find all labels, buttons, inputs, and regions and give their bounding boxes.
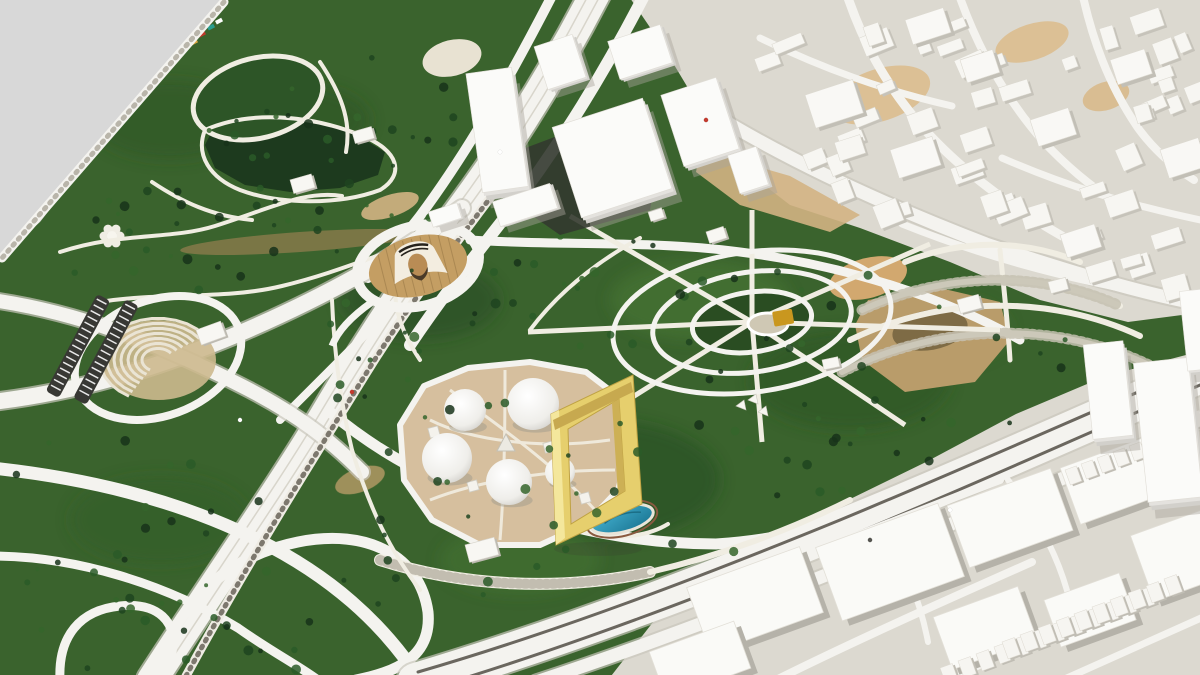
vehicle	[868, 538, 872, 542]
tree	[937, 305, 942, 310]
tree	[122, 557, 128, 563]
dome-building	[486, 459, 532, 505]
tree	[167, 517, 175, 525]
tree	[353, 113, 361, 121]
tree	[802, 402, 807, 407]
tree	[631, 239, 635, 243]
tree	[46, 440, 51, 445]
tree	[1063, 337, 1068, 342]
tree	[264, 109, 270, 115]
tree	[35, 567, 39, 571]
tree	[481, 592, 486, 597]
tree	[483, 577, 493, 587]
tree	[313, 226, 321, 234]
tree	[273, 199, 278, 204]
tree	[291, 665, 301, 675]
tree	[774, 268, 781, 275]
tree	[472, 311, 477, 316]
tree	[210, 614, 217, 621]
tree	[169, 254, 173, 258]
tree	[126, 604, 135, 613]
tree	[230, 131, 239, 140]
tree	[329, 158, 334, 163]
tree	[675, 289, 685, 299]
tree	[204, 583, 208, 587]
tree	[729, 547, 738, 556]
tree	[55, 560, 61, 566]
tree	[592, 508, 601, 517]
tree	[249, 154, 256, 161]
tree	[816, 416, 821, 421]
tree	[405, 377, 411, 383]
tree	[208, 508, 214, 514]
tree	[410, 269, 414, 273]
tree	[113, 550, 122, 559]
tree	[304, 119, 313, 128]
tree	[255, 497, 263, 505]
tree	[113, 597, 119, 603]
tree	[433, 477, 442, 486]
tree	[864, 271, 873, 280]
tree	[129, 266, 139, 276]
tree	[385, 448, 393, 456]
tree	[143, 246, 150, 253]
tree	[784, 457, 791, 464]
tree	[485, 402, 492, 409]
tree	[269, 247, 278, 256]
tree	[120, 436, 130, 446]
tree	[745, 446, 754, 455]
tree	[286, 113, 291, 118]
tree	[236, 272, 245, 281]
tree	[116, 212, 120, 216]
tree	[871, 396, 879, 404]
tree	[838, 487, 845, 494]
tree	[365, 203, 369, 207]
tree	[215, 264, 221, 270]
tree	[686, 339, 693, 346]
tree	[403, 331, 407, 335]
tree	[617, 421, 623, 427]
tree	[183, 254, 193, 264]
tree	[177, 599, 183, 605]
tree	[125, 594, 134, 603]
tree	[520, 484, 530, 494]
tree	[562, 282, 567, 287]
tree	[72, 270, 78, 276]
map-viewport[interactable]	[0, 0, 1200, 675]
tree	[574, 491, 579, 496]
tree	[848, 442, 853, 447]
tree	[273, 114, 278, 119]
tree	[1057, 363, 1066, 372]
tree	[491, 299, 501, 309]
tree	[490, 268, 498, 276]
tree	[668, 539, 677, 548]
map-canvas	[0, 0, 1200, 675]
tree	[362, 394, 367, 399]
tree	[257, 185, 264, 192]
tree	[336, 380, 345, 389]
tree	[167, 462, 174, 469]
tree	[335, 249, 339, 253]
tree	[290, 86, 295, 91]
tree	[786, 344, 794, 352]
tree	[417, 348, 422, 353]
tree	[181, 628, 187, 634]
tree	[731, 275, 738, 282]
vehicle	[350, 390, 354, 394]
tree	[388, 125, 397, 134]
tree	[141, 524, 150, 533]
tree	[253, 202, 261, 210]
tree	[106, 198, 112, 204]
tree	[694, 420, 704, 430]
tree	[566, 453, 571, 458]
tree	[439, 83, 448, 92]
tree	[345, 179, 354, 188]
tree	[194, 286, 203, 295]
tree	[391, 164, 395, 168]
tree	[341, 578, 346, 583]
tree	[368, 357, 373, 362]
tree	[177, 200, 186, 209]
plaza-pavilion	[579, 492, 591, 504]
tree	[530, 260, 538, 268]
tree	[764, 336, 769, 341]
tree	[590, 267, 600, 277]
vehicle	[948, 508, 952, 512]
tree	[650, 243, 655, 248]
tree	[92, 216, 99, 223]
tree	[207, 128, 212, 133]
tree	[857, 362, 866, 371]
tree	[186, 459, 196, 469]
tree	[120, 201, 130, 211]
tree	[409, 332, 419, 342]
tree	[827, 301, 837, 311]
tree	[306, 618, 314, 626]
tree	[546, 445, 554, 453]
tree	[90, 568, 98, 576]
tree	[445, 405, 455, 415]
tree	[323, 135, 332, 144]
tree	[369, 55, 375, 61]
tree	[203, 530, 209, 536]
tree	[262, 567, 271, 576]
tree	[375, 601, 381, 607]
tree	[389, 213, 393, 217]
tree	[392, 574, 400, 582]
tree	[13, 471, 20, 478]
tree	[470, 320, 476, 326]
tree	[993, 334, 1001, 342]
tree	[85, 665, 91, 671]
tree	[424, 137, 431, 144]
tree	[376, 516, 385, 525]
tree	[448, 137, 457, 146]
tree	[799, 287, 805, 293]
tree	[411, 135, 415, 139]
tree	[243, 645, 253, 655]
tree	[925, 457, 934, 466]
tree	[509, 299, 517, 307]
tree	[143, 187, 152, 196]
tree	[291, 647, 297, 653]
tree	[234, 119, 238, 123]
tree	[272, 223, 276, 227]
tree	[258, 649, 263, 654]
tree	[126, 228, 133, 235]
tree	[174, 188, 182, 196]
tree	[315, 206, 324, 215]
vehicle	[704, 118, 708, 122]
vehicle	[498, 150, 502, 154]
tree	[224, 624, 230, 630]
tree	[856, 427, 865, 436]
tree	[718, 369, 723, 374]
dome-building	[422, 433, 472, 483]
tree	[501, 399, 510, 408]
tree	[449, 113, 457, 121]
tree	[174, 221, 179, 226]
tree	[466, 514, 470, 518]
tree	[111, 251, 119, 259]
tree	[182, 655, 190, 663]
tree	[815, 487, 824, 496]
tree	[798, 340, 805, 347]
tree	[774, 492, 780, 498]
tree	[24, 579, 30, 585]
tree	[731, 427, 740, 436]
tree	[562, 546, 570, 554]
tree	[39, 627, 45, 633]
tree	[264, 152, 270, 158]
tree	[706, 376, 714, 384]
tree	[1007, 421, 1012, 426]
tree	[141, 503, 149, 511]
tree	[224, 141, 230, 147]
tree	[285, 217, 291, 223]
tree	[215, 213, 224, 222]
tree	[698, 276, 707, 285]
tree	[610, 487, 619, 496]
tree	[549, 521, 558, 530]
tree	[529, 313, 536, 320]
tree	[382, 533, 387, 538]
tree	[333, 393, 342, 402]
tree	[342, 299, 351, 308]
tree	[384, 556, 393, 565]
tree	[140, 616, 150, 626]
tree	[633, 447, 642, 456]
tree	[921, 417, 926, 422]
tree	[444, 479, 450, 485]
tree	[628, 339, 637, 348]
tree	[832, 434, 841, 443]
tree	[514, 259, 522, 267]
tree	[533, 563, 540, 570]
tree	[327, 321, 334, 328]
tree	[119, 607, 126, 614]
tree	[802, 460, 812, 470]
tree	[423, 415, 427, 419]
tree	[1038, 351, 1043, 356]
tree	[579, 276, 585, 282]
vehicle	[238, 418, 242, 422]
tree	[356, 356, 361, 361]
tree	[607, 331, 615, 339]
tree	[946, 418, 956, 428]
tree	[575, 286, 580, 291]
tree	[577, 342, 584, 349]
tree	[159, 601, 164, 606]
tree	[894, 450, 900, 456]
